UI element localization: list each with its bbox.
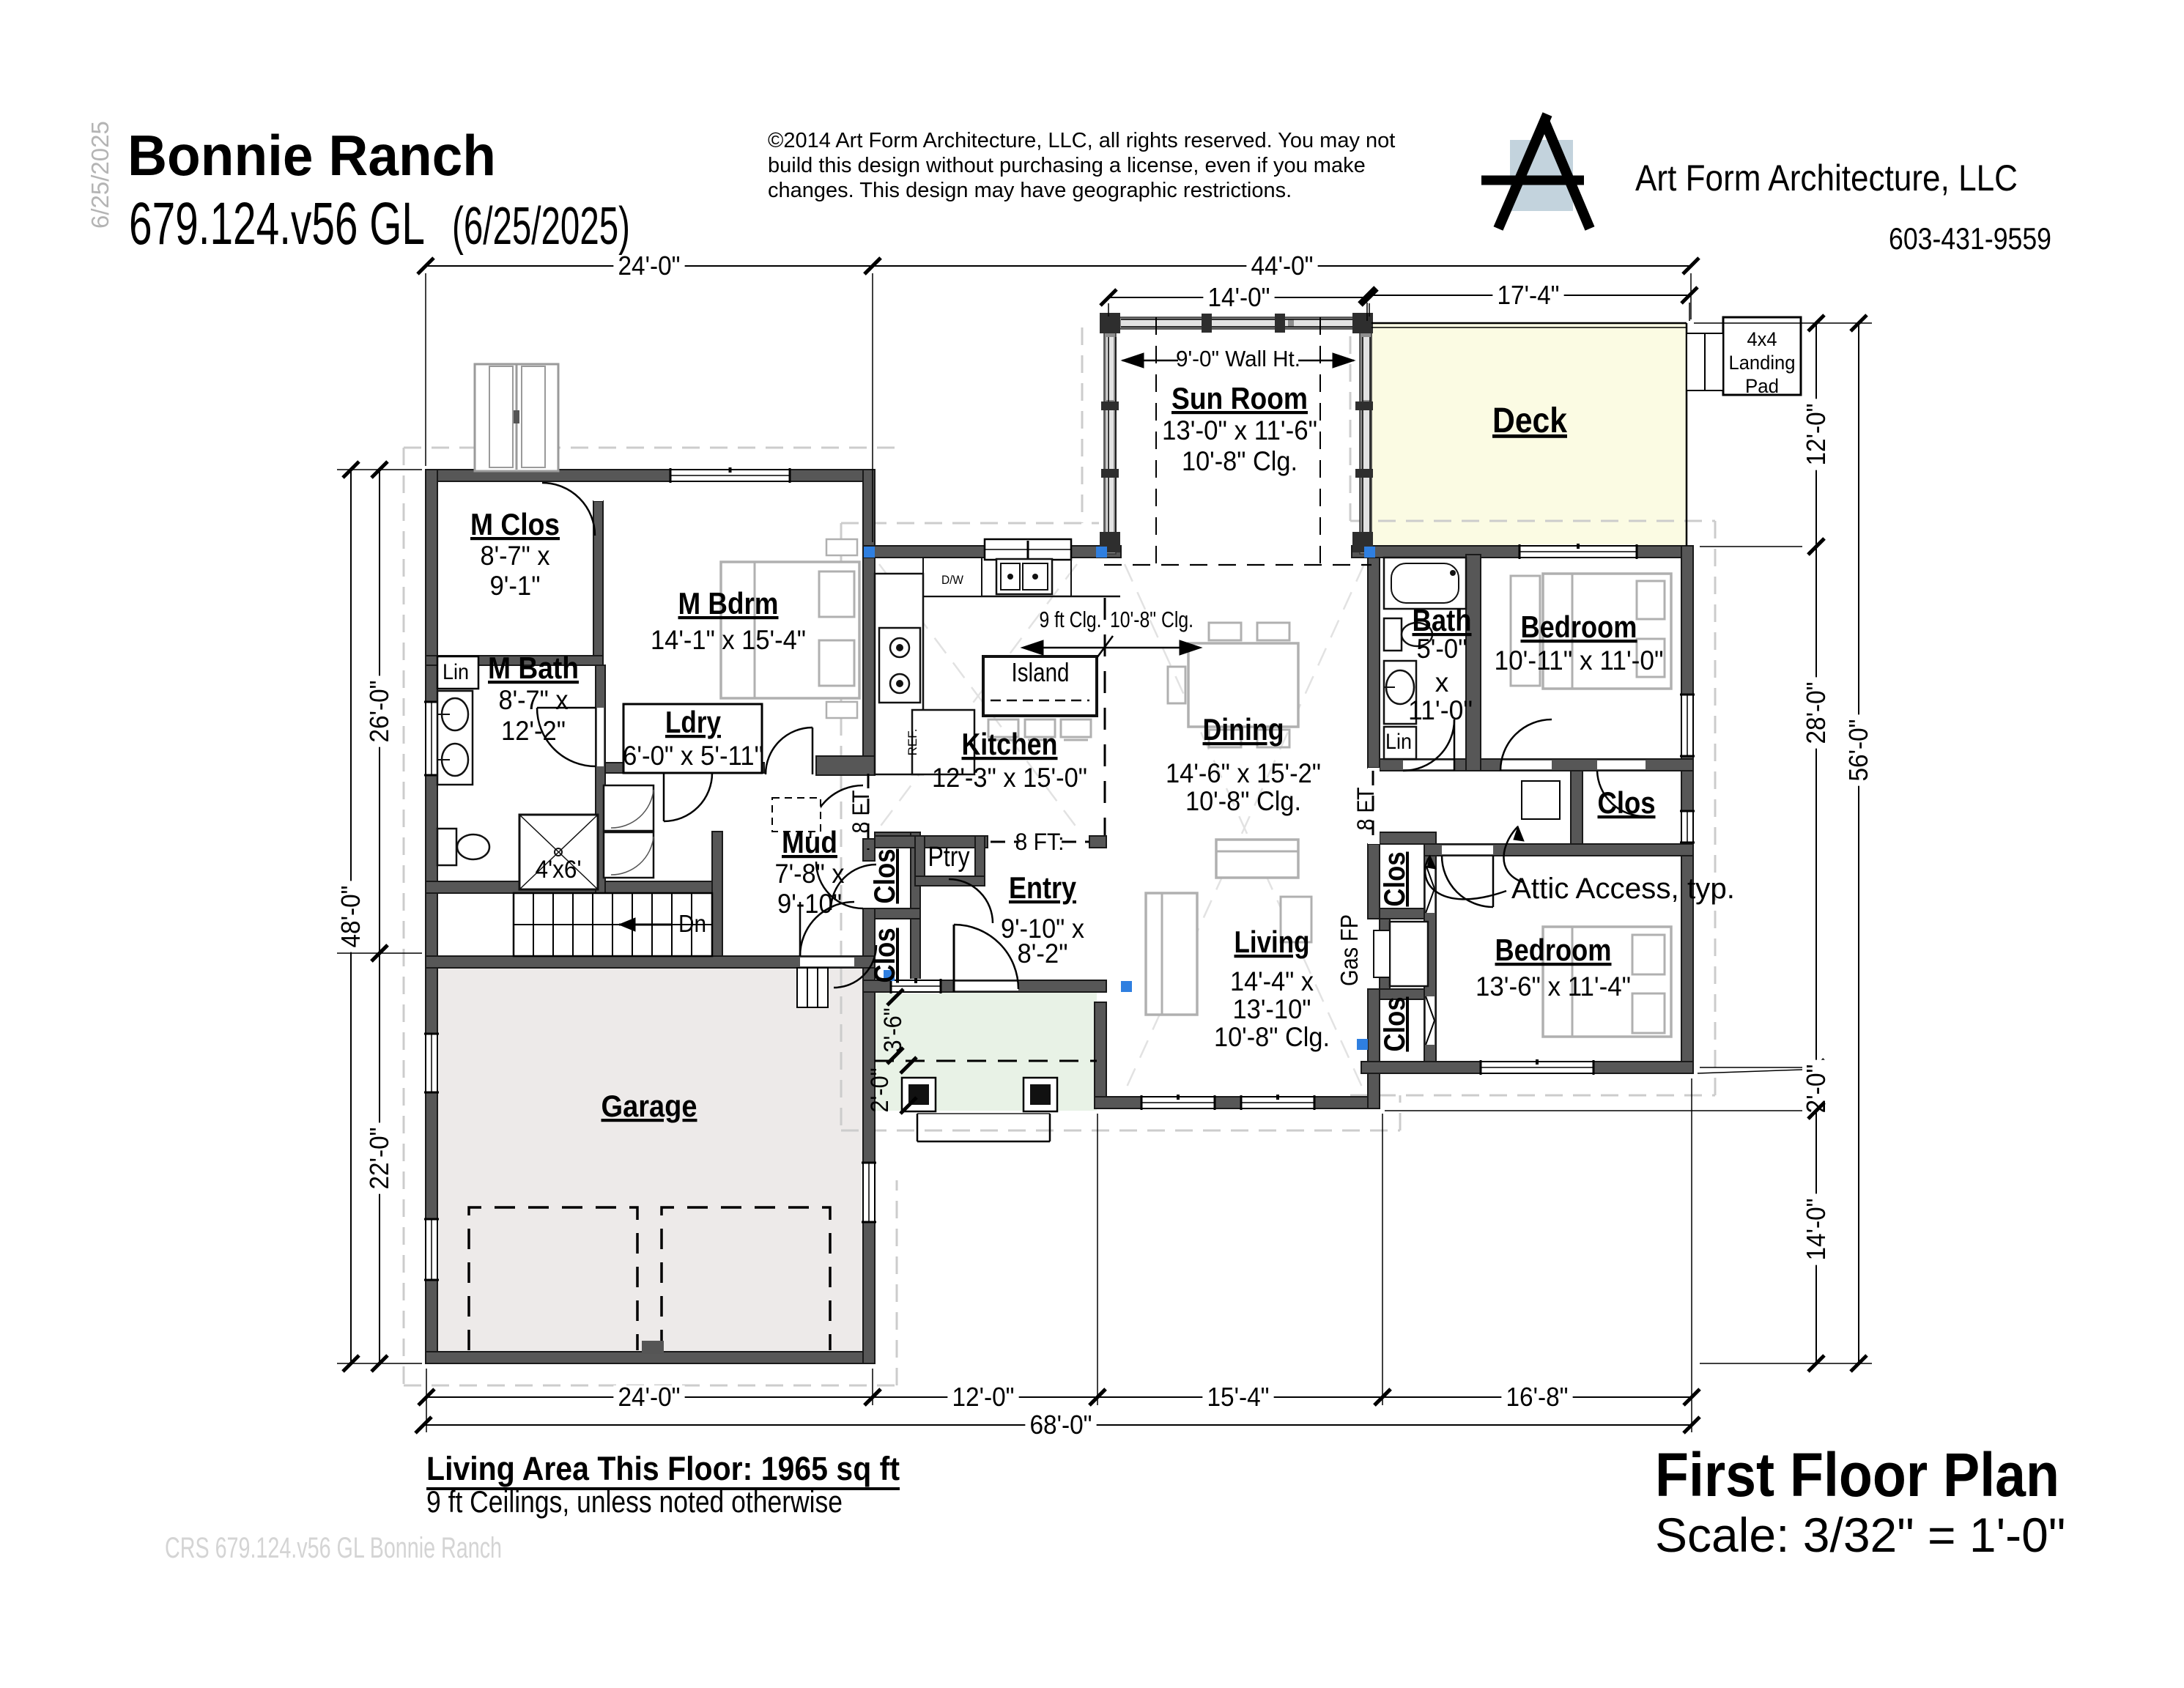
- svg-text:D/W: D/W: [941, 573, 963, 587]
- svg-text:9'-0" Wall Ht.: 9'-0" Wall Ht.: [1176, 346, 1300, 371]
- svg-text:build this design without purc: build this design without purchasing a l…: [768, 154, 1366, 177]
- svg-text:Sun Room: Sun Room: [1171, 381, 1308, 415]
- svg-text:M Clos: M Clos: [470, 507, 560, 541]
- svg-text:2'-0": 2'-0": [1801, 1065, 1831, 1114]
- svg-text:22'-0": 22'-0": [364, 1128, 394, 1190]
- svg-text:12'-2": 12'-2": [501, 716, 566, 746]
- svg-text:Entry: Entry: [1009, 870, 1077, 905]
- svg-text:Living: Living: [1234, 925, 1310, 959]
- svg-text:12'-0": 12'-0": [952, 1382, 1015, 1412]
- svg-text:Scale: 3/32" = 1'-0": Scale: 3/32" = 1'-0": [1655, 1508, 2065, 1562]
- svg-text:26'-0": 26'-0": [364, 681, 394, 743]
- svg-text:Clos: Clos: [1598, 785, 1656, 820]
- svg-text:(6/25/2025): (6/25/2025): [452, 197, 630, 256]
- svg-text:©2014 Art Form Architecture, L: ©2014 Art Form Architecture, LLC, all ri…: [768, 129, 1395, 152]
- svg-text:8 FT: 8 FT: [1352, 788, 1379, 831]
- svg-text:13'-6" x 11'-4": 13'-6" x 11'-4": [1476, 971, 1631, 1002]
- svg-text:Pad: Pad: [1745, 375, 1779, 397]
- svg-text:56'-0": 56'-0": [1843, 719, 1873, 782]
- svg-text:6'-0" x 5'-11": 6'-0" x 5'-11": [623, 741, 763, 771]
- svg-text:44'-0": 44'-0": [1251, 251, 1314, 281]
- svg-text:12'-0": 12'-0": [1801, 404, 1831, 466]
- svg-text:Bonnie Ranch: Bonnie Ranch: [127, 123, 496, 188]
- svg-text:6/25/2025: 6/25/2025: [86, 121, 114, 229]
- svg-text:Lin: Lin: [1385, 730, 1412, 754]
- svg-text:10'-8" Clg.: 10'-8" Clg.: [1182, 446, 1298, 476]
- svg-text:9 ft Clg.: 9 ft Clg.: [1040, 607, 1102, 632]
- svg-text:13'-0" x 11'-6": 13'-0" x 11'-6": [1162, 415, 1317, 445]
- svg-text:Living Area This Floor: 1965 s: Living Area This Floor: 1965 sq ft: [426, 1450, 900, 1487]
- svg-text:679.124.v56 GL: 679.124.v56 GL: [129, 190, 425, 257]
- svg-text:14'-0": 14'-0": [1801, 1199, 1831, 1261]
- svg-text:15'-4": 15'-4": [1207, 1382, 1270, 1412]
- svg-text:Dining: Dining: [1203, 712, 1284, 747]
- svg-text:Bath: Bath: [1413, 603, 1472, 637]
- svg-text:9 ft Ceilings, unless noted ot: 9 ft Ceilings, unless noted otherwise: [426, 1484, 843, 1519]
- svg-text:14'-6" x 15'-2": 14'-6" x 15'-2": [1166, 758, 1321, 788]
- svg-text:Gas FP: Gas FP: [1336, 914, 1363, 986]
- svg-text:14'-4" x: 14'-4" x: [1230, 966, 1314, 996]
- svg-text:14'-0": 14'-0": [1208, 282, 1270, 312]
- svg-text:8'-7" x: 8'-7" x: [499, 685, 569, 715]
- svg-text:Lin: Lin: [443, 660, 469, 684]
- svg-text:Clos: Clos: [869, 928, 901, 983]
- svg-text:48'-0": 48'-0": [336, 886, 366, 948]
- svg-text:Clos: Clos: [1379, 852, 1411, 907]
- svg-text:9'-10": 9'-10": [777, 889, 842, 919]
- svg-text:8 FT:: 8 FT:: [1015, 829, 1065, 855]
- svg-text:Bedroom: Bedroom: [1495, 933, 1612, 967]
- svg-text:8'-2": 8'-2": [1018, 939, 1068, 969]
- svg-text:Ptry: Ptry: [928, 842, 970, 873]
- svg-text:Island: Island: [1012, 657, 1070, 687]
- svg-text:2'-0": 2'-0": [866, 1068, 894, 1113]
- svg-text:13'-10": 13'-10": [1233, 994, 1311, 1024]
- svg-text:Deck: Deck: [1492, 401, 1567, 440]
- svg-text:3'-6": 3'-6": [879, 1008, 907, 1053]
- svg-text:8'-7" x: 8'-7" x: [481, 541, 550, 571]
- svg-text:14'-1" x 15'-4": 14'-1" x 15'-4": [651, 625, 806, 655]
- svg-text:Mud: Mud: [782, 825, 837, 859]
- svg-text:10'-8" Clg.: 10'-8" Clg.: [1185, 786, 1301, 816]
- svg-text:16'-8": 16'-8": [1506, 1382, 1569, 1412]
- svg-text:Garage: Garage: [601, 1089, 697, 1123]
- svg-text:12'-3" x 15'-0": 12'-3" x 15'-0": [932, 763, 1087, 793]
- svg-text:changes. This design may have: changes. This design may have geographic…: [768, 179, 1292, 202]
- svg-text:24'-0": 24'-0": [618, 1382, 681, 1412]
- svg-text:Art Form Architecture, LLC: Art Form Architecture, LLC: [1635, 158, 2018, 199]
- svg-text:Kitchen: Kitchen: [962, 727, 1058, 761]
- svg-text:4'x6': 4'x6': [536, 856, 582, 884]
- svg-text:Bedroom: Bedroom: [1521, 610, 1637, 644]
- svg-text:5'-0": 5'-0": [1417, 634, 1467, 664]
- svg-text:8 FT: 8 FT: [848, 791, 874, 834]
- svg-text:CRS 679.124.v56 GL Bonnie Ranc: CRS 679.124.v56 GL Bonnie Ranch: [165, 1532, 502, 1564]
- svg-text:Attic Access, typ.: Attic Access, typ.: [1511, 873, 1735, 905]
- svg-text:10'-8" Clg.: 10'-8" Clg.: [1214, 1022, 1330, 1052]
- svg-text:REF.: REF.: [906, 729, 919, 756]
- svg-text:11'-0": 11'-0": [1408, 695, 1473, 725]
- svg-text:Landing: Landing: [1729, 352, 1796, 374]
- svg-text:68'-0": 68'-0": [1030, 1410, 1092, 1440]
- svg-text:7'-8" x: 7'-8" x: [775, 859, 845, 889]
- svg-text:4x4: 4x4: [1747, 328, 1777, 350]
- svg-text:Dn: Dn: [678, 910, 706, 937]
- svg-text:Clos: Clos: [869, 849, 901, 904]
- svg-text:Clos: Clos: [1379, 997, 1411, 1052]
- svg-text:10'-11" x 11'-0": 10'-11" x 11'-0": [1495, 645, 1664, 675]
- svg-text:Ldry: Ldry: [665, 705, 722, 739]
- svg-text:M Bdrm: M Bdrm: [678, 586, 779, 621]
- svg-text:17'-4": 17'-4": [1498, 280, 1560, 310]
- svg-text:28'-0": 28'-0": [1801, 682, 1831, 744]
- svg-text:M Bath: M Bath: [488, 651, 579, 685]
- svg-text:10'-8" Clg.: 10'-8" Clg.: [1110, 607, 1193, 632]
- svg-text:x: x: [1435, 667, 1449, 697]
- svg-text:First Floor Plan: First Floor Plan: [1655, 1440, 2059, 1509]
- svg-text:603-431-9559: 603-431-9559: [1889, 221, 2051, 256]
- svg-text:9'-1": 9'-1": [490, 571, 541, 601]
